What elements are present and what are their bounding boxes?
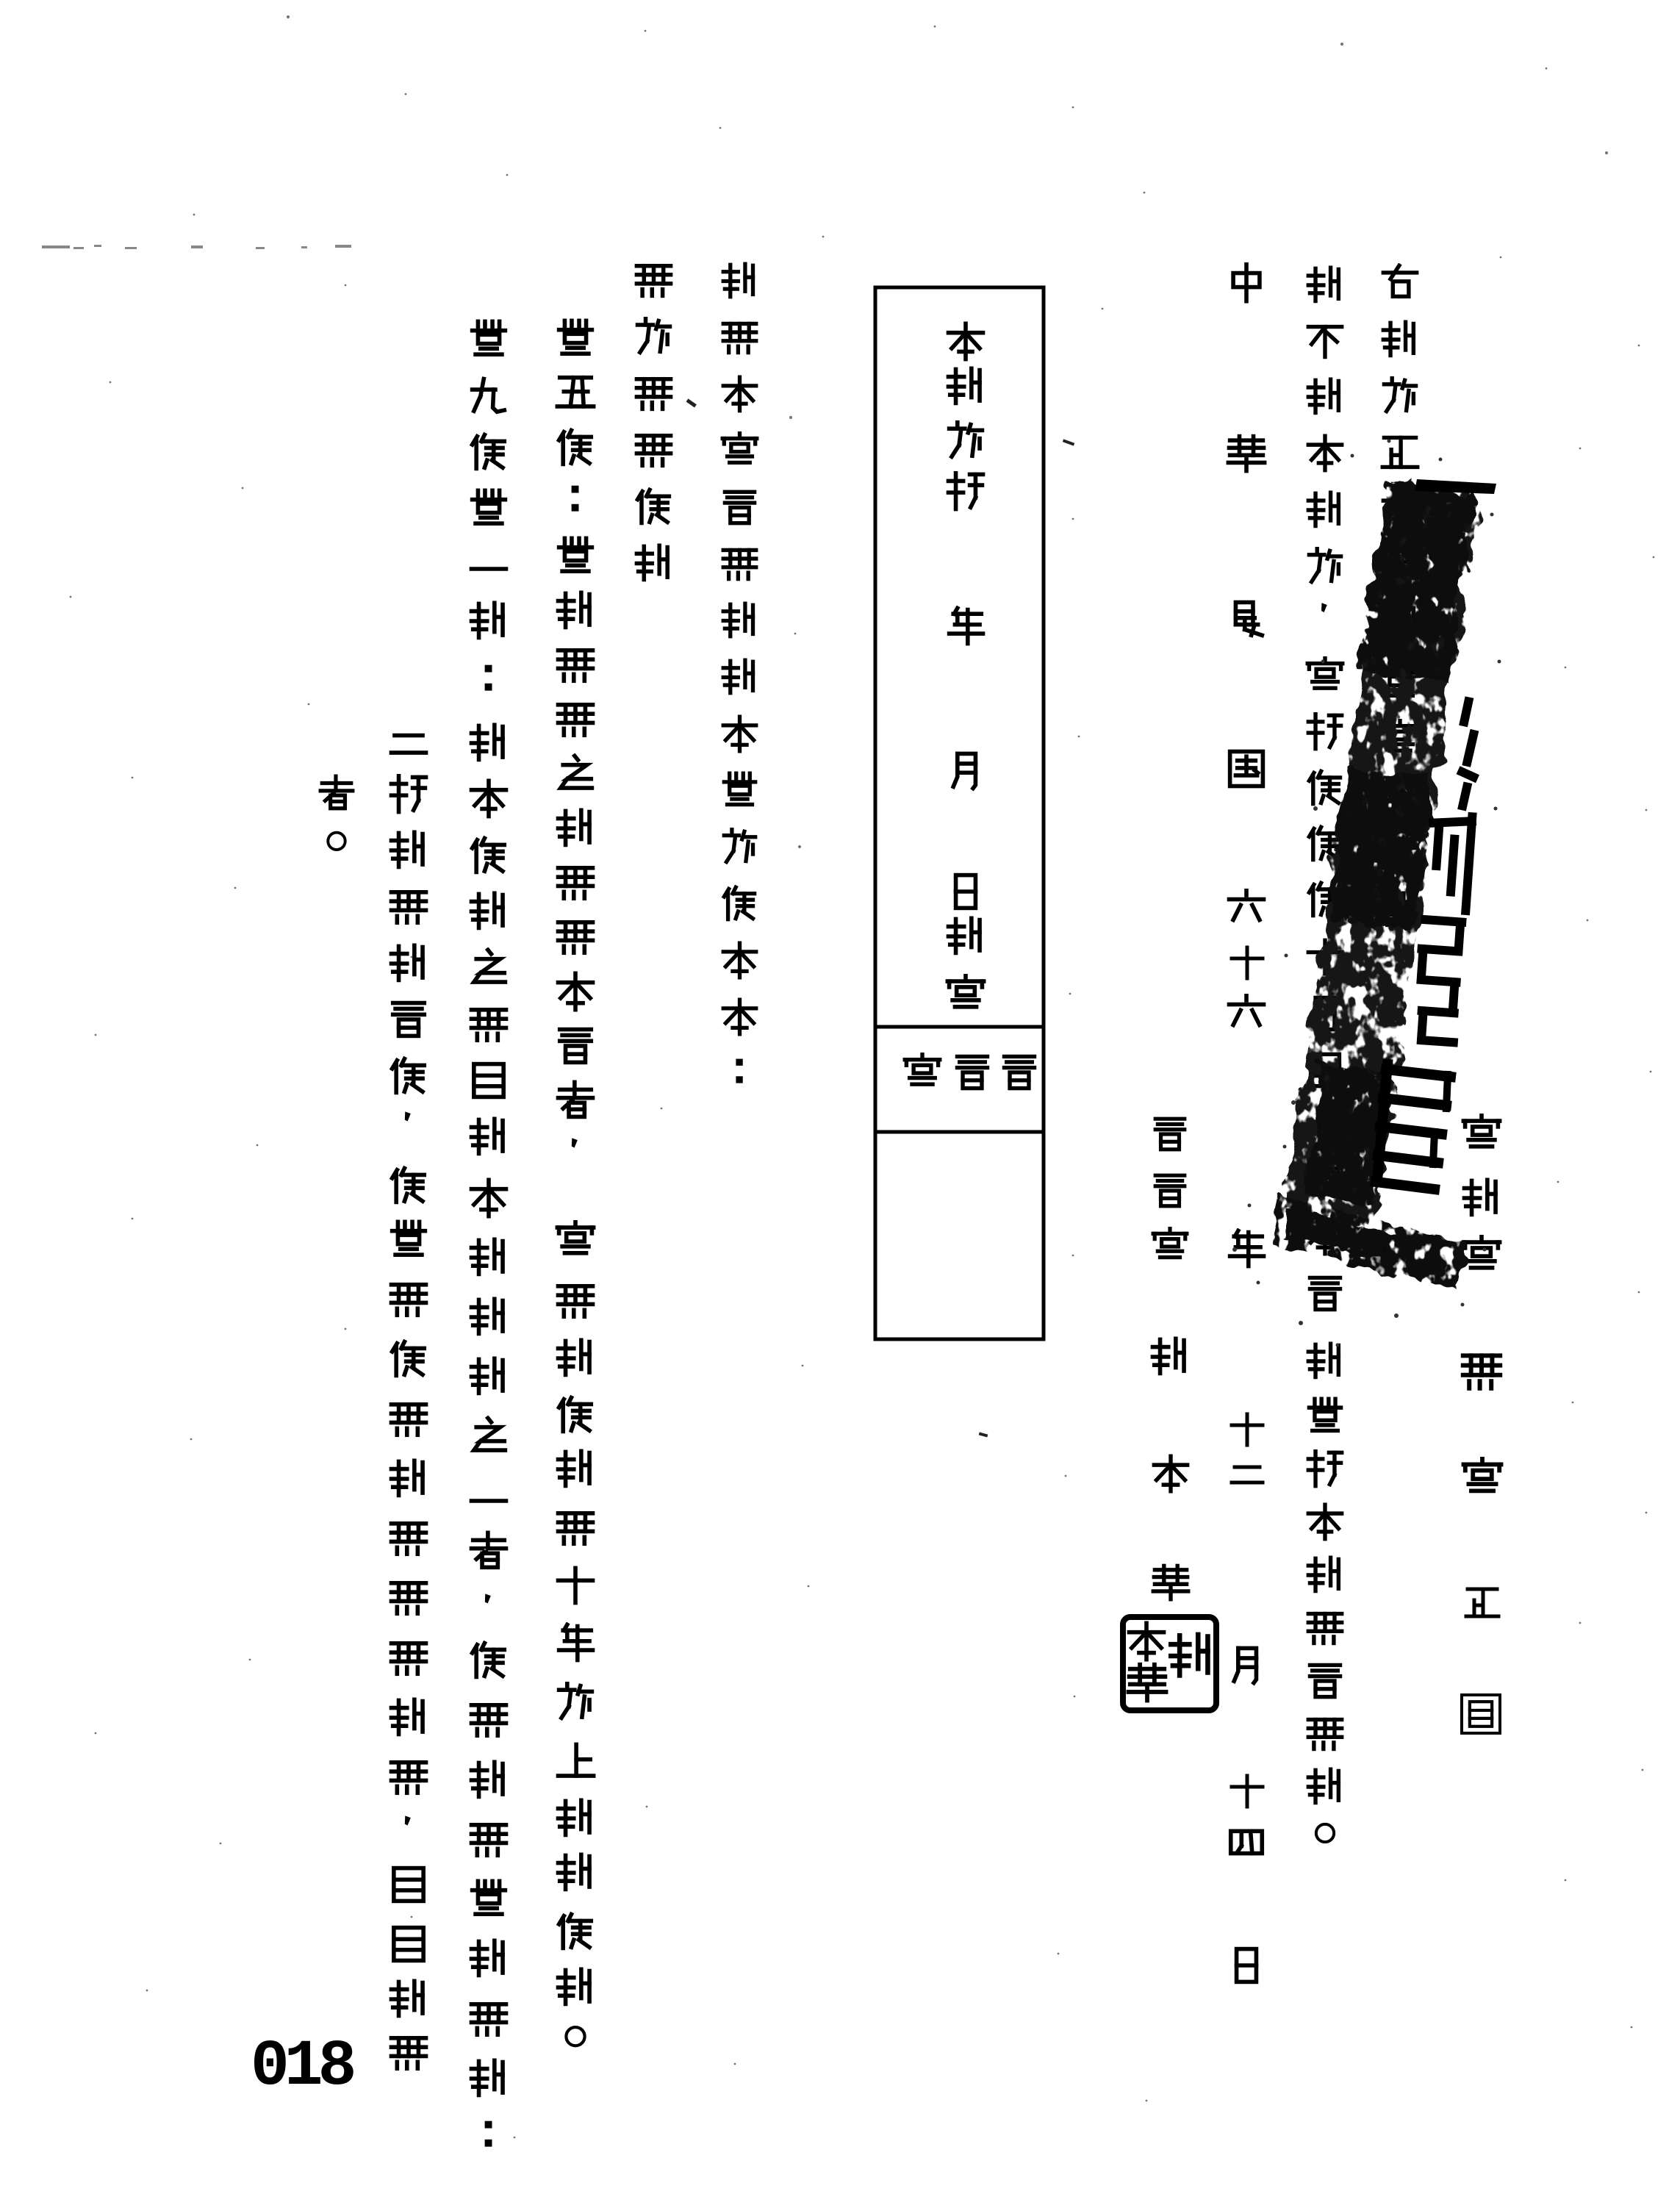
svg-text:018: 018 [251,2031,354,2104]
